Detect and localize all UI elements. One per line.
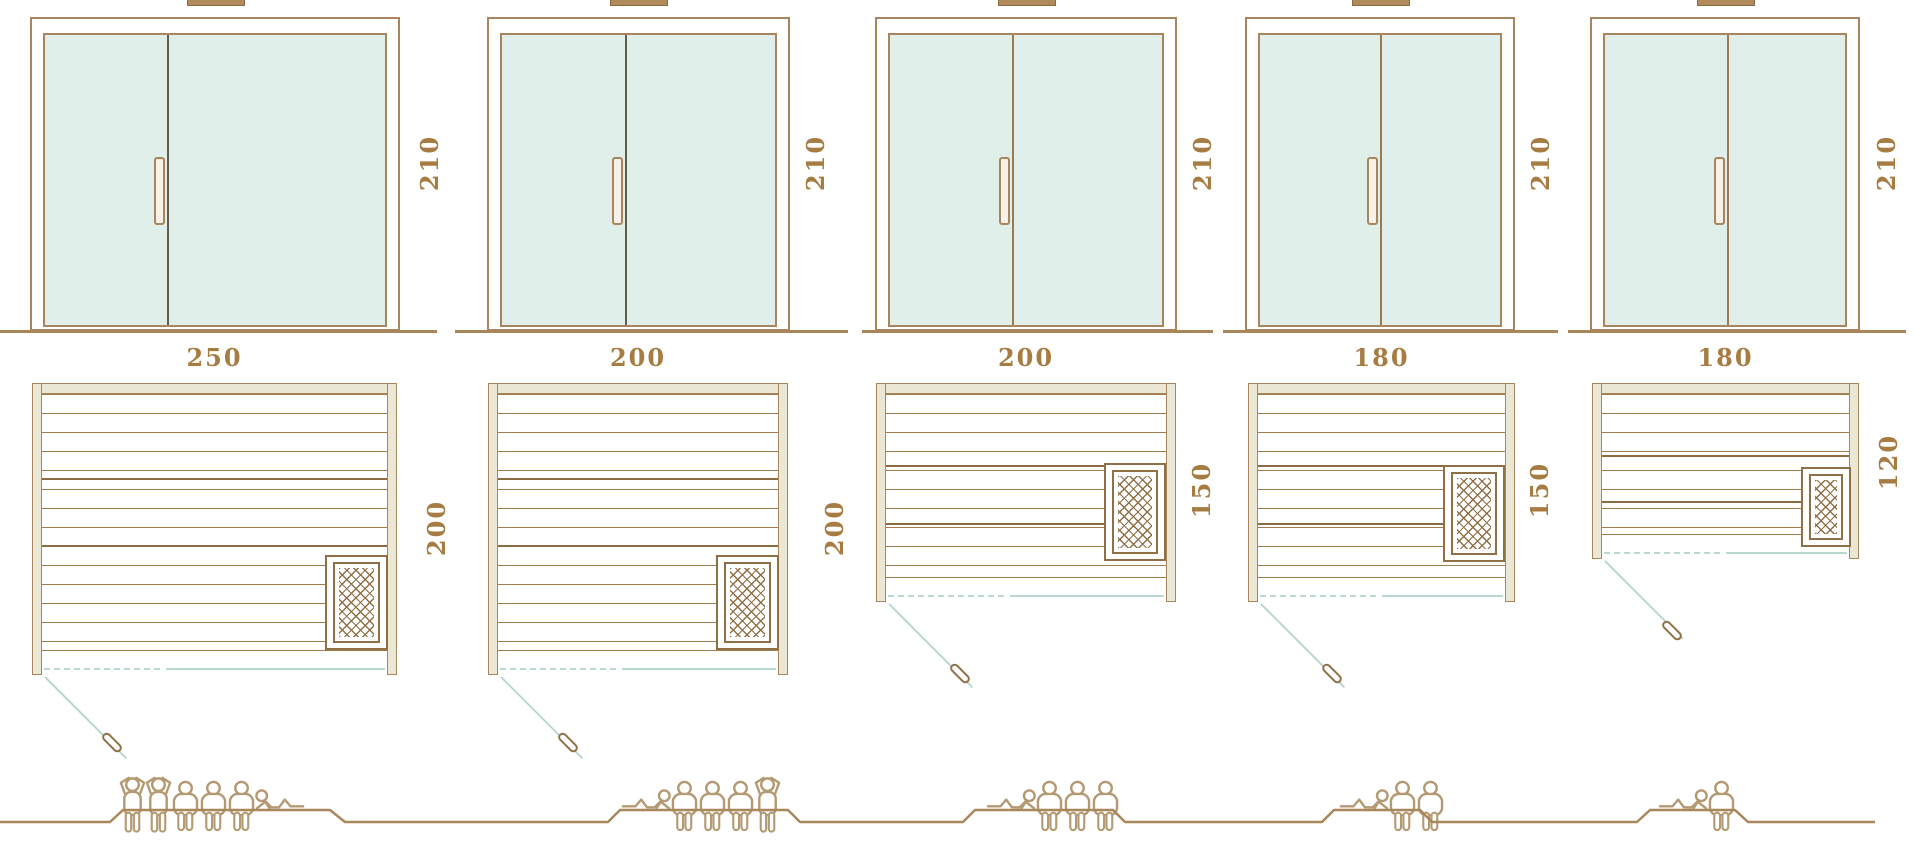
width-dimension-label: 200	[488, 344, 788, 372]
floor-plan-5	[1592, 383, 1859, 559]
door-split-line	[1727, 35, 1729, 325]
depth-dimension-label: 150	[1526, 460, 1554, 520]
front-elevation-4	[1245, 17, 1515, 331]
glass-double-door	[500, 33, 777, 327]
front-elevation-2	[487, 17, 790, 331]
height-dimension-label: 210	[416, 133, 444, 193]
wall-top	[876, 383, 1176, 394]
heater	[325, 555, 388, 650]
heater-frame	[724, 562, 771, 643]
door-swing-handle-icon	[948, 662, 971, 685]
wall-top	[1248, 383, 1515, 394]
width-dimension-label: 250	[32, 344, 397, 372]
floor-plan-3	[876, 383, 1176, 602]
door-handle-icon	[999, 157, 1010, 225]
wall-left	[32, 383, 42, 675]
height-dimension-label: 210	[1189, 133, 1217, 193]
heater-stones-icon	[1815, 480, 1837, 534]
heater-stones-icon	[730, 568, 765, 637]
bench-edge-line	[498, 478, 778, 480]
door-swing-handle-icon	[100, 731, 123, 754]
door-swing-handle-icon	[1660, 619, 1683, 642]
heater-stones-icon	[1457, 478, 1491, 549]
heater-frame	[1809, 474, 1843, 540]
heater-stones-icon	[1118, 476, 1152, 548]
ground-line	[862, 330, 1213, 333]
ground-line	[455, 330, 848, 333]
door-swing-handle-icon	[1320, 662, 1343, 685]
width-dimension-label: 180	[1248, 344, 1515, 372]
glass-double-door	[888, 33, 1164, 327]
heater-frame	[1112, 470, 1158, 554]
bench-edge-line	[42, 478, 387, 480]
door-opening-dashed-line	[1604, 552, 1720, 554]
roof-vent-icon	[998, 0, 1056, 6]
glass-double-door	[1258, 33, 1502, 327]
glass-front-line	[1726, 552, 1847, 554]
bench-edge-line	[42, 545, 387, 547]
wall-right	[387, 383, 397, 675]
door-opening-dashed-line	[500, 668, 616, 670]
door-handle-icon	[1367, 157, 1378, 225]
front-elevation-3	[875, 17, 1177, 331]
ground-line	[1223, 330, 1558, 333]
wall-top	[488, 383, 788, 394]
wall-top	[32, 383, 397, 394]
door-handle-icon	[154, 157, 165, 225]
glass-front-line	[622, 668, 776, 670]
roof-vent-icon	[1697, 0, 1755, 6]
roof-vent-icon	[187, 0, 245, 6]
heater	[716, 555, 779, 650]
heater	[1801, 467, 1851, 547]
floor-plan-1	[32, 383, 397, 675]
glass-front-line	[166, 668, 385, 670]
heater-stones-icon	[339, 568, 374, 637]
capacity-baseline	[0, 760, 1920, 856]
door-swing-handle-icon	[556, 731, 579, 754]
height-dimension-label: 210	[802, 133, 830, 193]
wall-right	[1505, 383, 1515, 602]
wall-left	[1592, 383, 1602, 559]
heater	[1104, 463, 1166, 561]
ground-line	[0, 330, 437, 333]
door-handle-icon	[1714, 157, 1725, 225]
wall-right	[1166, 383, 1176, 602]
door-opening-dashed-line	[1260, 595, 1376, 597]
door-split-line	[625, 35, 627, 325]
glass-double-door	[43, 33, 387, 327]
roof-vent-icon	[610, 0, 668, 6]
wall-left	[488, 383, 498, 675]
depth-dimension-label: 200	[423, 498, 451, 558]
width-dimension-label: 200	[876, 344, 1176, 372]
wall-left	[876, 383, 886, 602]
depth-dimension-label: 120	[1875, 432, 1903, 492]
height-dimension-label: 210	[1873, 133, 1901, 193]
depth-dimension-label: 200	[821, 498, 849, 558]
glass-front-line	[1010, 595, 1164, 597]
height-dimension-label: 210	[1527, 133, 1555, 193]
heater-frame	[333, 562, 380, 643]
ground-line	[1568, 330, 1906, 333]
door-split-line	[1380, 35, 1382, 325]
width-dimension-label: 180	[1592, 344, 1859, 372]
glass-front-line	[1382, 595, 1503, 597]
door-split-line	[1012, 35, 1014, 325]
heater-frame	[1451, 472, 1497, 555]
bench-edge-line	[498, 545, 778, 547]
floor-plan-2	[488, 383, 788, 675]
wall-left	[1248, 383, 1258, 602]
door-split-line	[167, 35, 169, 325]
floor-plan-4	[1248, 383, 1515, 602]
sauna-size-diagram: 210 250 200	[0, 0, 1920, 856]
front-elevation-1	[30, 17, 400, 331]
bench-edge-line	[1602, 455, 1849, 457]
glass-double-door	[1603, 33, 1847, 327]
depth-dimension-label: 150	[1188, 460, 1216, 520]
heater	[1443, 465, 1505, 562]
door-opening-dashed-line	[44, 668, 160, 670]
wall-right	[778, 383, 788, 675]
roof-vent-icon	[1352, 0, 1410, 6]
front-elevation-5	[1590, 17, 1860, 331]
door-handle-icon	[612, 157, 623, 225]
door-opening-dashed-line	[888, 595, 1004, 597]
wall-top	[1592, 383, 1859, 394]
